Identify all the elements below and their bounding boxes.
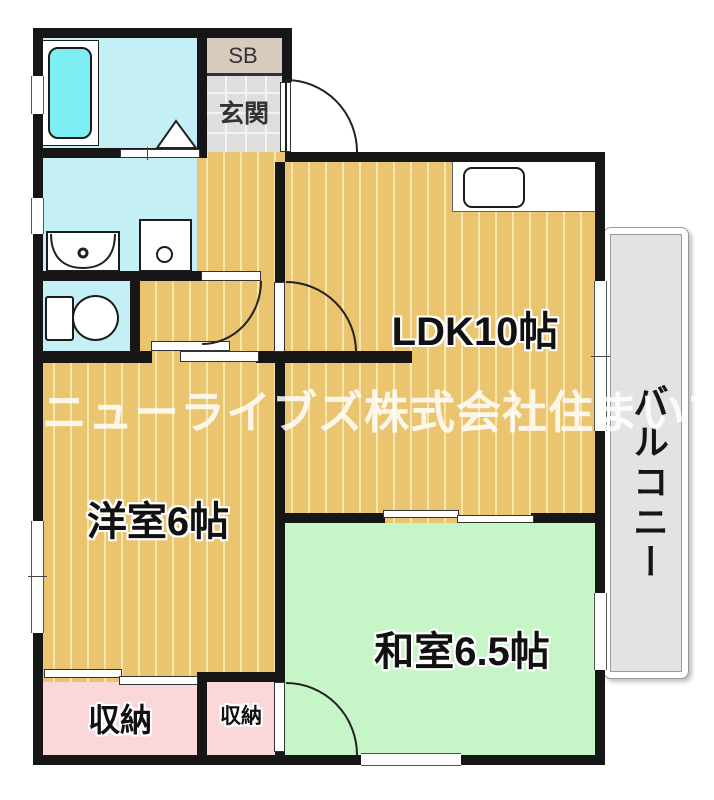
label-japanese: 和室6.5帖 — [374, 619, 550, 677]
watermark-text: ニューライブズ株式会社住まいプロ — [42, 376, 714, 441]
label-ldk: LDK10帖 — [392, 299, 559, 357]
toilet-door-arc — [202, 281, 261, 344]
ldk-door-arc — [286, 282, 356, 352]
label-shoebox: SB — [228, 43, 257, 69]
label-entrance: 玄関 — [219, 94, 269, 130]
floor-plan: LDK10帖 洋室6帖 和室6.5帖 収納 収納 玄関 SB バルコニー ニュー… — [0, 0, 714, 800]
bathroom-folding-door — [157, 121, 196, 148]
washitsu-door-arc — [286, 683, 357, 755]
entrance-door-arc — [286, 80, 357, 152]
vanity-bowl — [51, 234, 115, 268]
label-closet-small: 収納 — [220, 700, 262, 730]
label-closet-large: 収納 — [88, 695, 152, 741]
label-western: 洋室6帖 — [87, 489, 229, 547]
